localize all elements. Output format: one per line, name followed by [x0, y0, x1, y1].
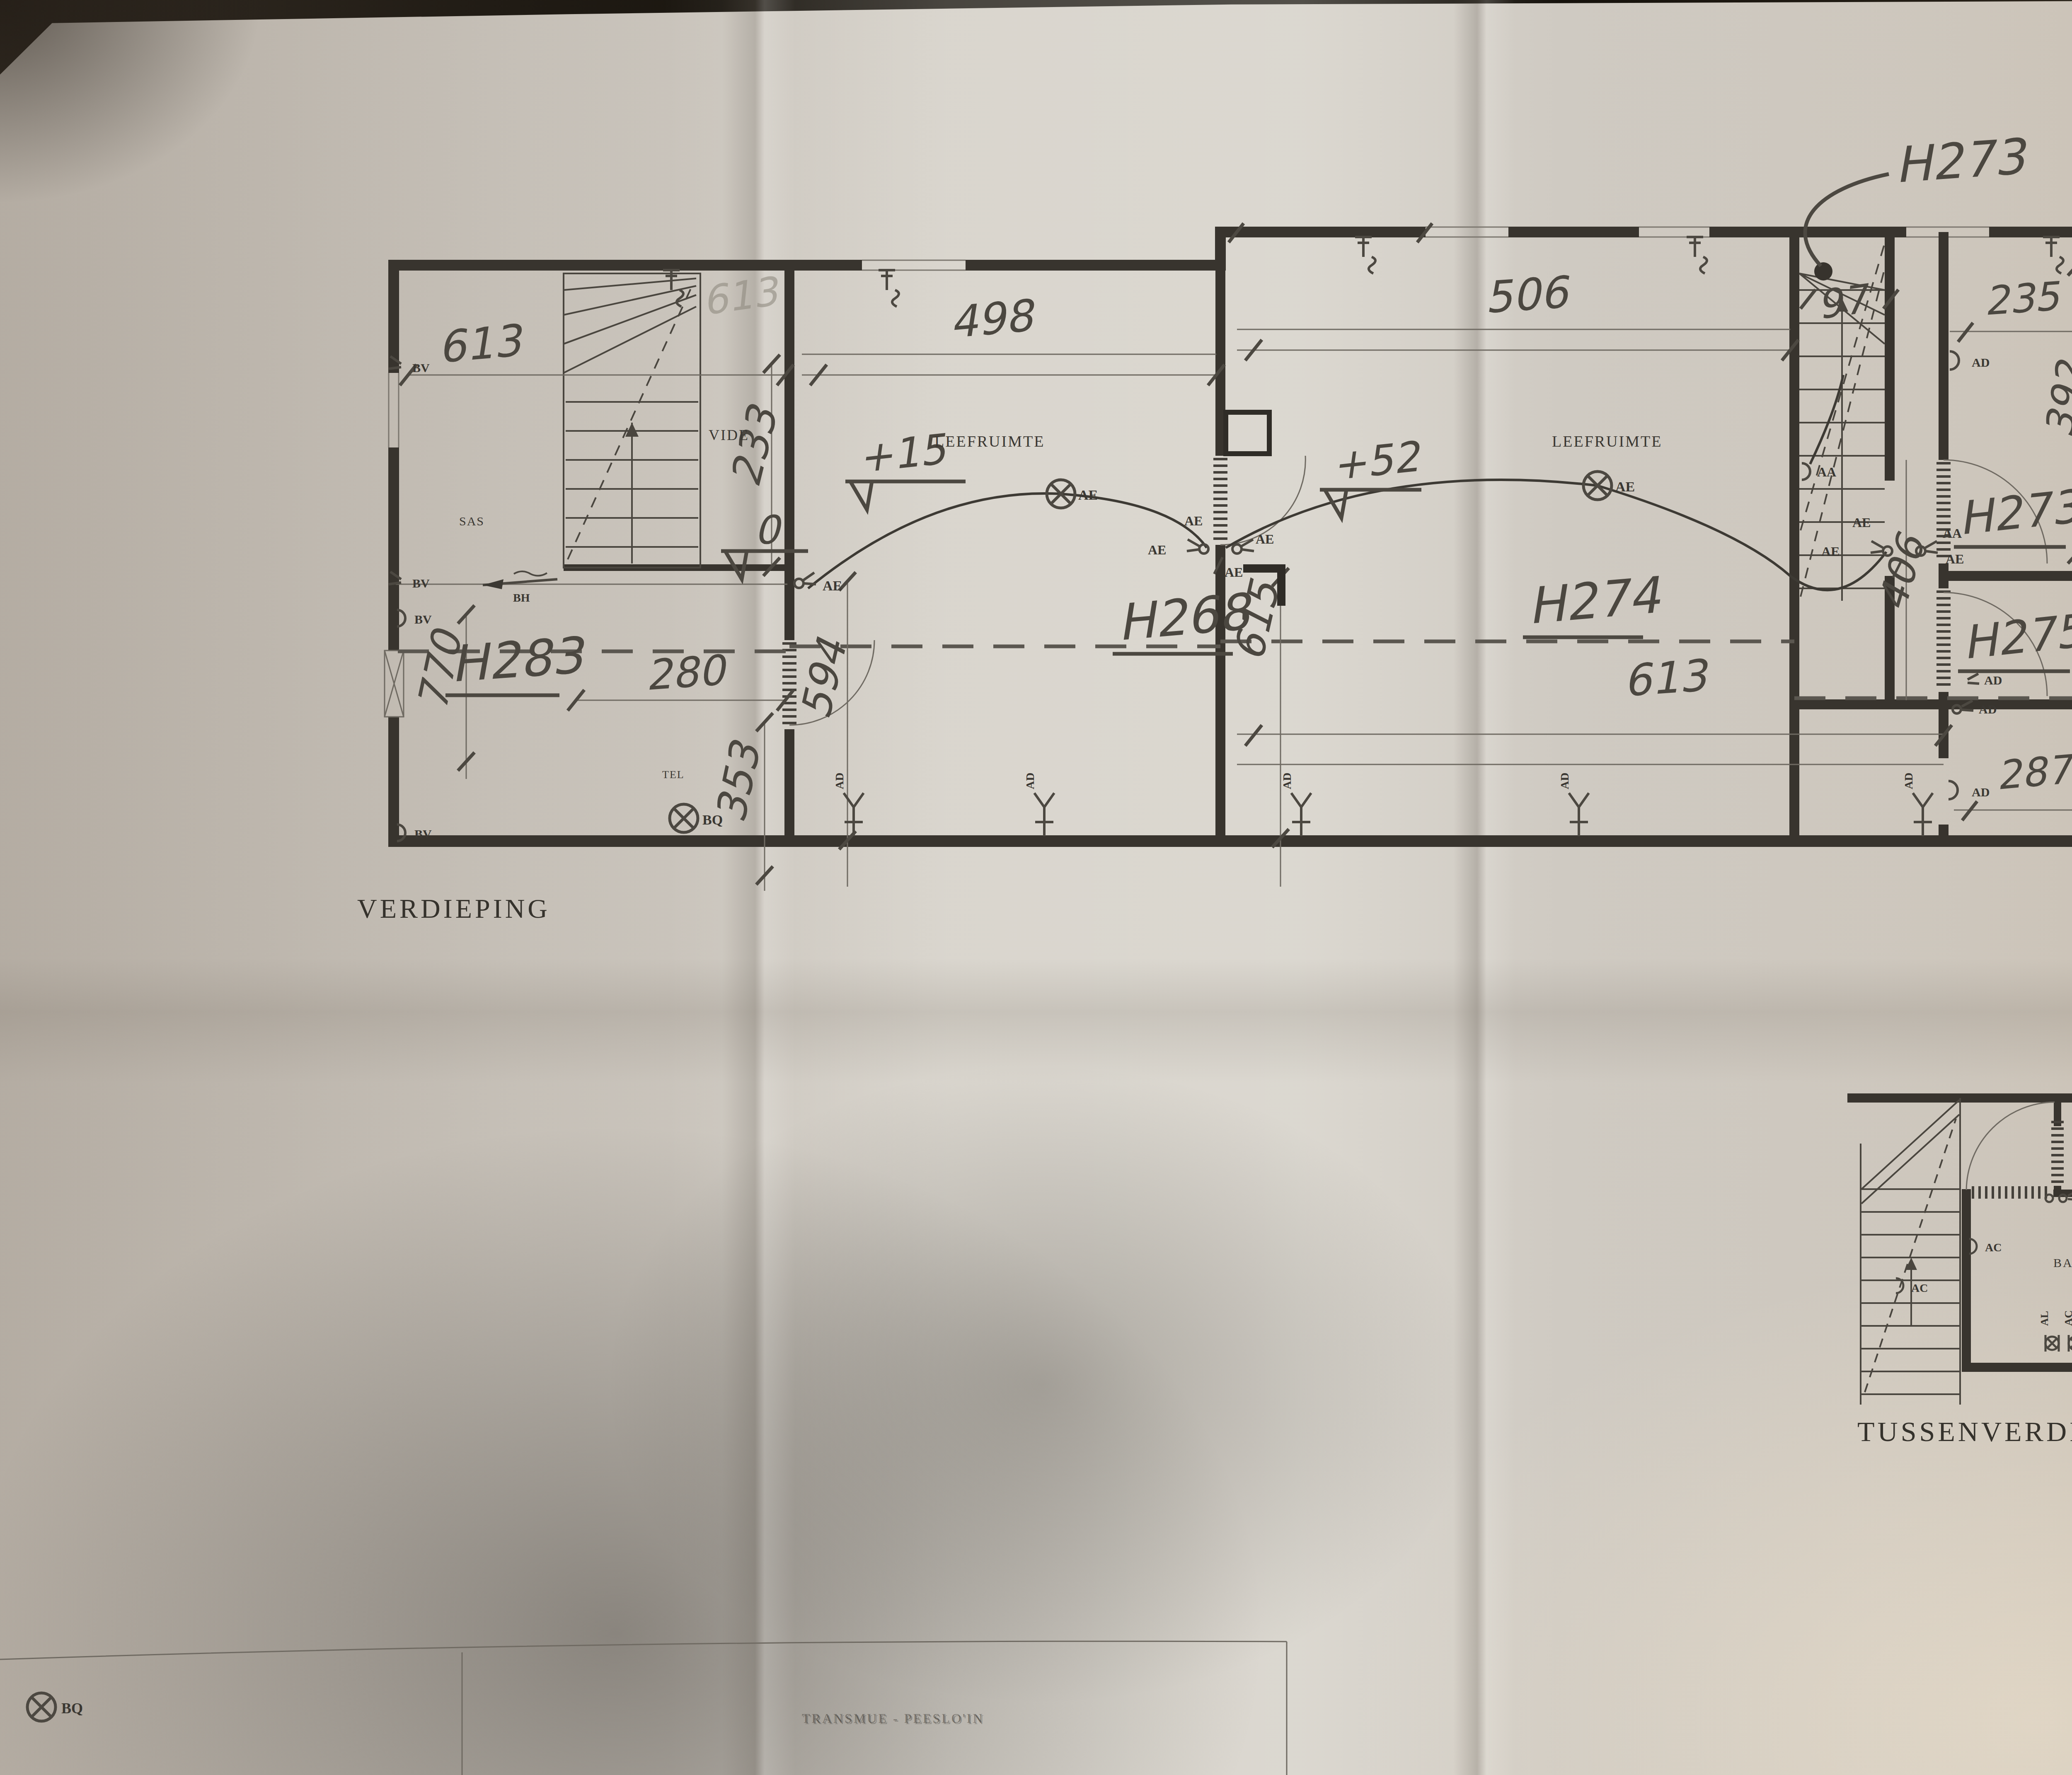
stamp-text-blur: TRANSMUE - PEESLO'IN	[803, 1712, 985, 1727]
mezzanine-stairs	[1861, 1098, 1960, 1405]
room-label-h283: H283	[448, 626, 588, 693]
switch-label-ac: AC	[1985, 1241, 2002, 1254]
legend-bq-icon	[27, 1693, 56, 1721]
dim-287: 287	[1994, 746, 2072, 798]
wall-symbol-ad: AD	[1972, 785, 1990, 799]
wall-symbol-ad: AD	[833, 773, 846, 789]
mezzanine-switches	[1896, 1191, 2072, 1352]
switch-label-ac: AC	[1911, 1282, 1928, 1294]
wall-symbol-ad: AD	[1280, 773, 1293, 789]
dim-280: 280	[644, 646, 729, 700]
mezzanine-plan: WC BADKAMER AC AC AC AC AL AC AC	[1847, 1093, 2072, 1405]
dim-613-faint: 613	[700, 268, 783, 324]
dim-406-corridor: 406	[1869, 528, 1934, 616]
wall-symbol-bv: BV	[412, 576, 430, 590]
switch-label-ae: AE	[1184, 513, 1203, 528]
level-52: +52	[1329, 432, 1423, 490]
bh-arrow-icon	[483, 571, 557, 589]
room-label-h273: H273	[1956, 479, 2072, 545]
room-name-leefruimte-2: LEEFRUIMTE	[1552, 433, 1662, 450]
lamp-label-ae-h268: AE	[1078, 487, 1098, 503]
room-label-h274: H274	[1525, 566, 1663, 635]
room-name-tel: TEL	[662, 769, 685, 781]
lamp-label-al: AL	[2038, 1311, 2050, 1326]
plan-drawing: AE AE BQ H273 AE AE AE AE AE AE AE AA AE…	[0, 0, 2072, 1775]
room-label-h275: H275	[1960, 604, 2072, 669]
ad-wall-light-icons	[844, 793, 1933, 836]
wall-symbol-bv: BV	[414, 827, 432, 841]
dim-97: 97	[1814, 276, 1874, 328]
floor-plan-photo: AE AE BQ H273 AE AE AE AE AE AE AE AA AE…	[0, 0, 2072, 1775]
switch-label-aa: AA	[1817, 464, 1836, 479]
mezzanine-door-arc	[1966, 1102, 2055, 1190]
hatched-window-icon	[385, 651, 404, 717]
stair-lamp-dot	[1814, 262, 1832, 281]
switch-label-aa: AA	[1943, 526, 1962, 541]
wall-symbol-ad: AD	[1902, 773, 1915, 789]
wall-symbol-ad: AD	[1558, 773, 1571, 789]
lamp-label-ae-h274: AE	[1615, 479, 1635, 494]
wall-symbol-bh: BH	[513, 591, 530, 604]
level-marker-52: +52	[1320, 432, 1424, 518]
switch-label-ae: AE	[823, 578, 842, 593]
switch-label-ae: AE	[1256, 532, 1274, 547]
wall-symbol-ad: AD	[1984, 673, 2002, 687]
switch-aa-stairwell	[1802, 463, 1810, 480]
annotation-h273: H273	[1893, 128, 2030, 194]
room-name-badkamer: BADKAMER	[2053, 1256, 2072, 1270]
dim-233: 233	[721, 400, 788, 491]
switch-label-ae: AE	[1946, 551, 1964, 566]
dim-498: 498	[948, 290, 1038, 348]
switch-label-ae: AE	[1821, 544, 1840, 559]
dim-353: 353	[706, 737, 770, 827]
bottom-sheet: BQ TRANSMUE - PEESLO'IN TRANSMUE - PEESL…	[0, 1641, 2072, 1775]
wall-symbol-ad: AD	[1024, 773, 1036, 789]
duct-annotation	[1226, 412, 1269, 454]
switch-label-ae: AE	[1148, 542, 1166, 557]
dim-235: 235	[1982, 273, 2062, 324]
room-name-sas: SAS	[459, 514, 484, 528]
wall-symbol-ad: AD	[1972, 355, 1990, 369]
lamp-label-ac: AC	[2062, 1310, 2072, 1326]
switch-label-ae: AE	[1225, 565, 1243, 580]
switch-label-ae: AE	[1852, 515, 1871, 530]
level-0: 0	[754, 507, 782, 553]
room-label-h268: H268	[1115, 583, 1256, 652]
doors	[789, 456, 2047, 727]
staircase-left	[564, 273, 700, 568]
wall-symbol-ad: AD	[1979, 702, 1997, 716]
wall-symbol-bv: BV	[414, 612, 432, 626]
legend-bq-label: BQ	[61, 1700, 83, 1717]
ceiling-lamp-icon	[670, 804, 698, 832]
room-name-vide: VIDE	[709, 427, 749, 443]
h273-leader-line	[1805, 174, 1889, 266]
dim-613-bottom: 613	[1622, 650, 1711, 706]
wall-symbol-bv: BV	[412, 361, 430, 375]
dim-506: 506	[1483, 267, 1572, 323]
dim-613-top: 613	[436, 315, 526, 373]
dim-392: 392	[2036, 357, 2072, 441]
caption-tussenverdieping: TUSSENVERDIEPING	[1857, 1416, 2072, 1447]
room-name-leefruimte: LEEFRUIMTE	[934, 433, 1045, 450]
caption-verdieping: VERDIEPING	[357, 893, 550, 924]
